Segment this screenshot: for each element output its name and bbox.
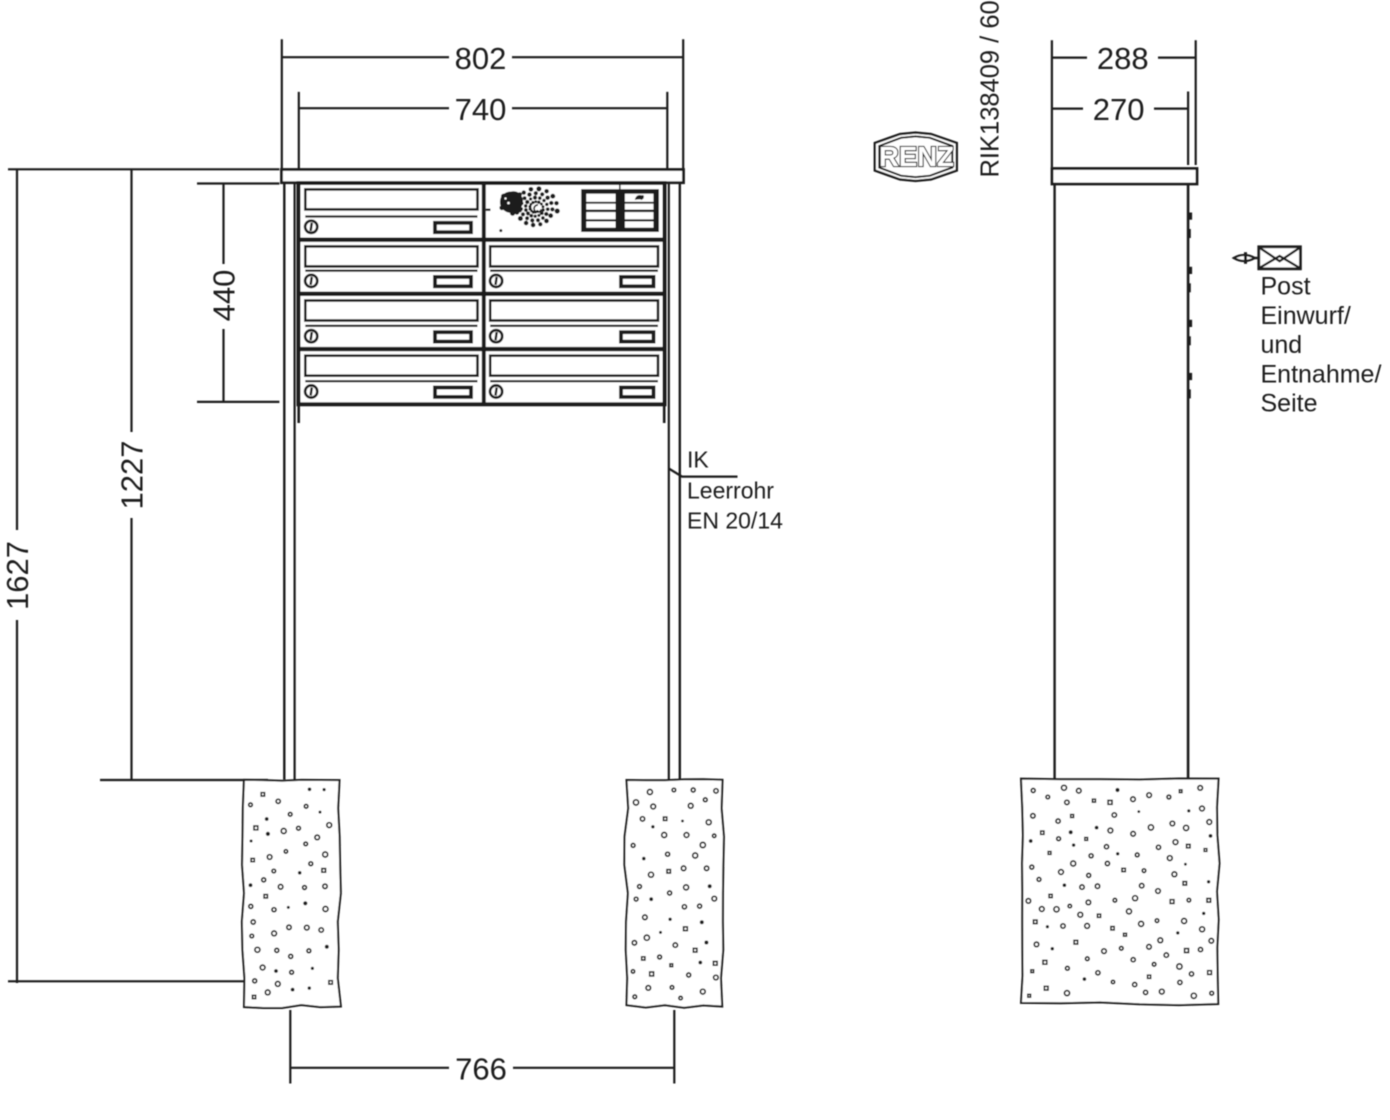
svg-text:740: 740 bbox=[455, 92, 507, 127]
svg-text:RIK138409 / 60: RIK138409 / 60 bbox=[977, 0, 1005, 177]
svg-text:270: 270 bbox=[1093, 92, 1145, 127]
svg-text:802: 802 bbox=[455, 41, 507, 76]
svg-text:1627: 1627 bbox=[0, 541, 35, 610]
svg-text:1227: 1227 bbox=[115, 441, 150, 510]
svg-text:Leerrohr: Leerrohr bbox=[687, 477, 774, 503]
svg-text:Post: Post bbox=[1261, 273, 1311, 301]
svg-text:766: 766 bbox=[455, 1051, 507, 1086]
svg-text:Seite: Seite bbox=[1261, 390, 1318, 418]
svg-text:und: und bbox=[1261, 331, 1303, 359]
svg-text:IK: IK bbox=[687, 447, 709, 473]
svg-text:Entnahme/: Entnahme/ bbox=[1261, 360, 1382, 388]
svg-text:Einwurf/: Einwurf/ bbox=[1261, 302, 1351, 330]
svg-text:440: 440 bbox=[207, 270, 242, 322]
svg-text:EN 20/14: EN 20/14 bbox=[687, 507, 783, 533]
svg-text:288: 288 bbox=[1097, 41, 1149, 76]
svg-text:RENZ: RENZ bbox=[879, 141, 954, 172]
